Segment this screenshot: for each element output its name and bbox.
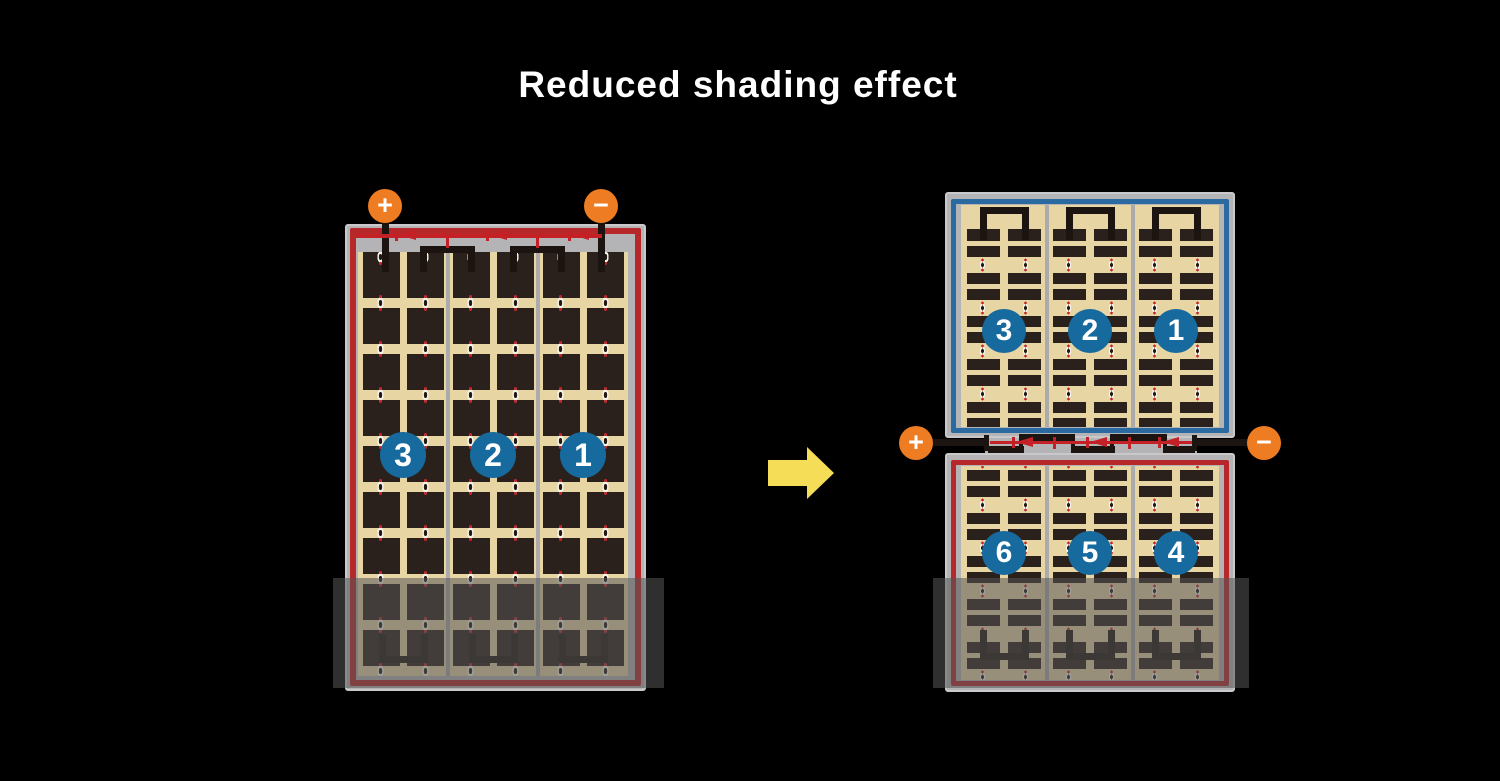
string-bridge-wire: [1152, 207, 1159, 240]
negative-lead-wire: [1197, 439, 1252, 446]
negative-terminal: −: [1247, 426, 1281, 460]
positive-terminal: +: [899, 426, 933, 460]
positive-lead-wire: [930, 439, 985, 446]
bypass-tap-wire: [1128, 437, 1131, 449]
right-bottom-string-badge: 5: [1068, 531, 1112, 575]
right-top-string-badge: 2: [1068, 309, 1112, 353]
string-bridge-wire: [1022, 207, 1029, 240]
right-top-string-badge: 1: [1154, 309, 1198, 353]
string-divider: [1131, 205, 1135, 427]
right-bottom-string-badge: 4: [1154, 531, 1198, 575]
bypass-tap-wire: [1053, 437, 1056, 449]
shading-overlay: [933, 578, 1249, 688]
bypass-diode-icon: [1012, 437, 1033, 448]
right-bottom-string-badge: 6: [982, 531, 1026, 575]
string-divider: [1045, 205, 1049, 427]
reduced-shading-diagram: Reduced shading effect: [0, 0, 1500, 781]
string-bridge-wire: [1066, 207, 1073, 240]
string-bridge-wire: [980, 207, 987, 240]
bypass-diode-icon: [1158, 437, 1179, 448]
right-top-string-badge: 3: [982, 309, 1026, 353]
right-module: 3 2 1 6 5 4: [0, 0, 1500, 781]
bypass-diode-icon: [1086, 437, 1107, 448]
string-bridge-wire: [1108, 207, 1115, 240]
string-bridge-wire: [1194, 207, 1201, 240]
